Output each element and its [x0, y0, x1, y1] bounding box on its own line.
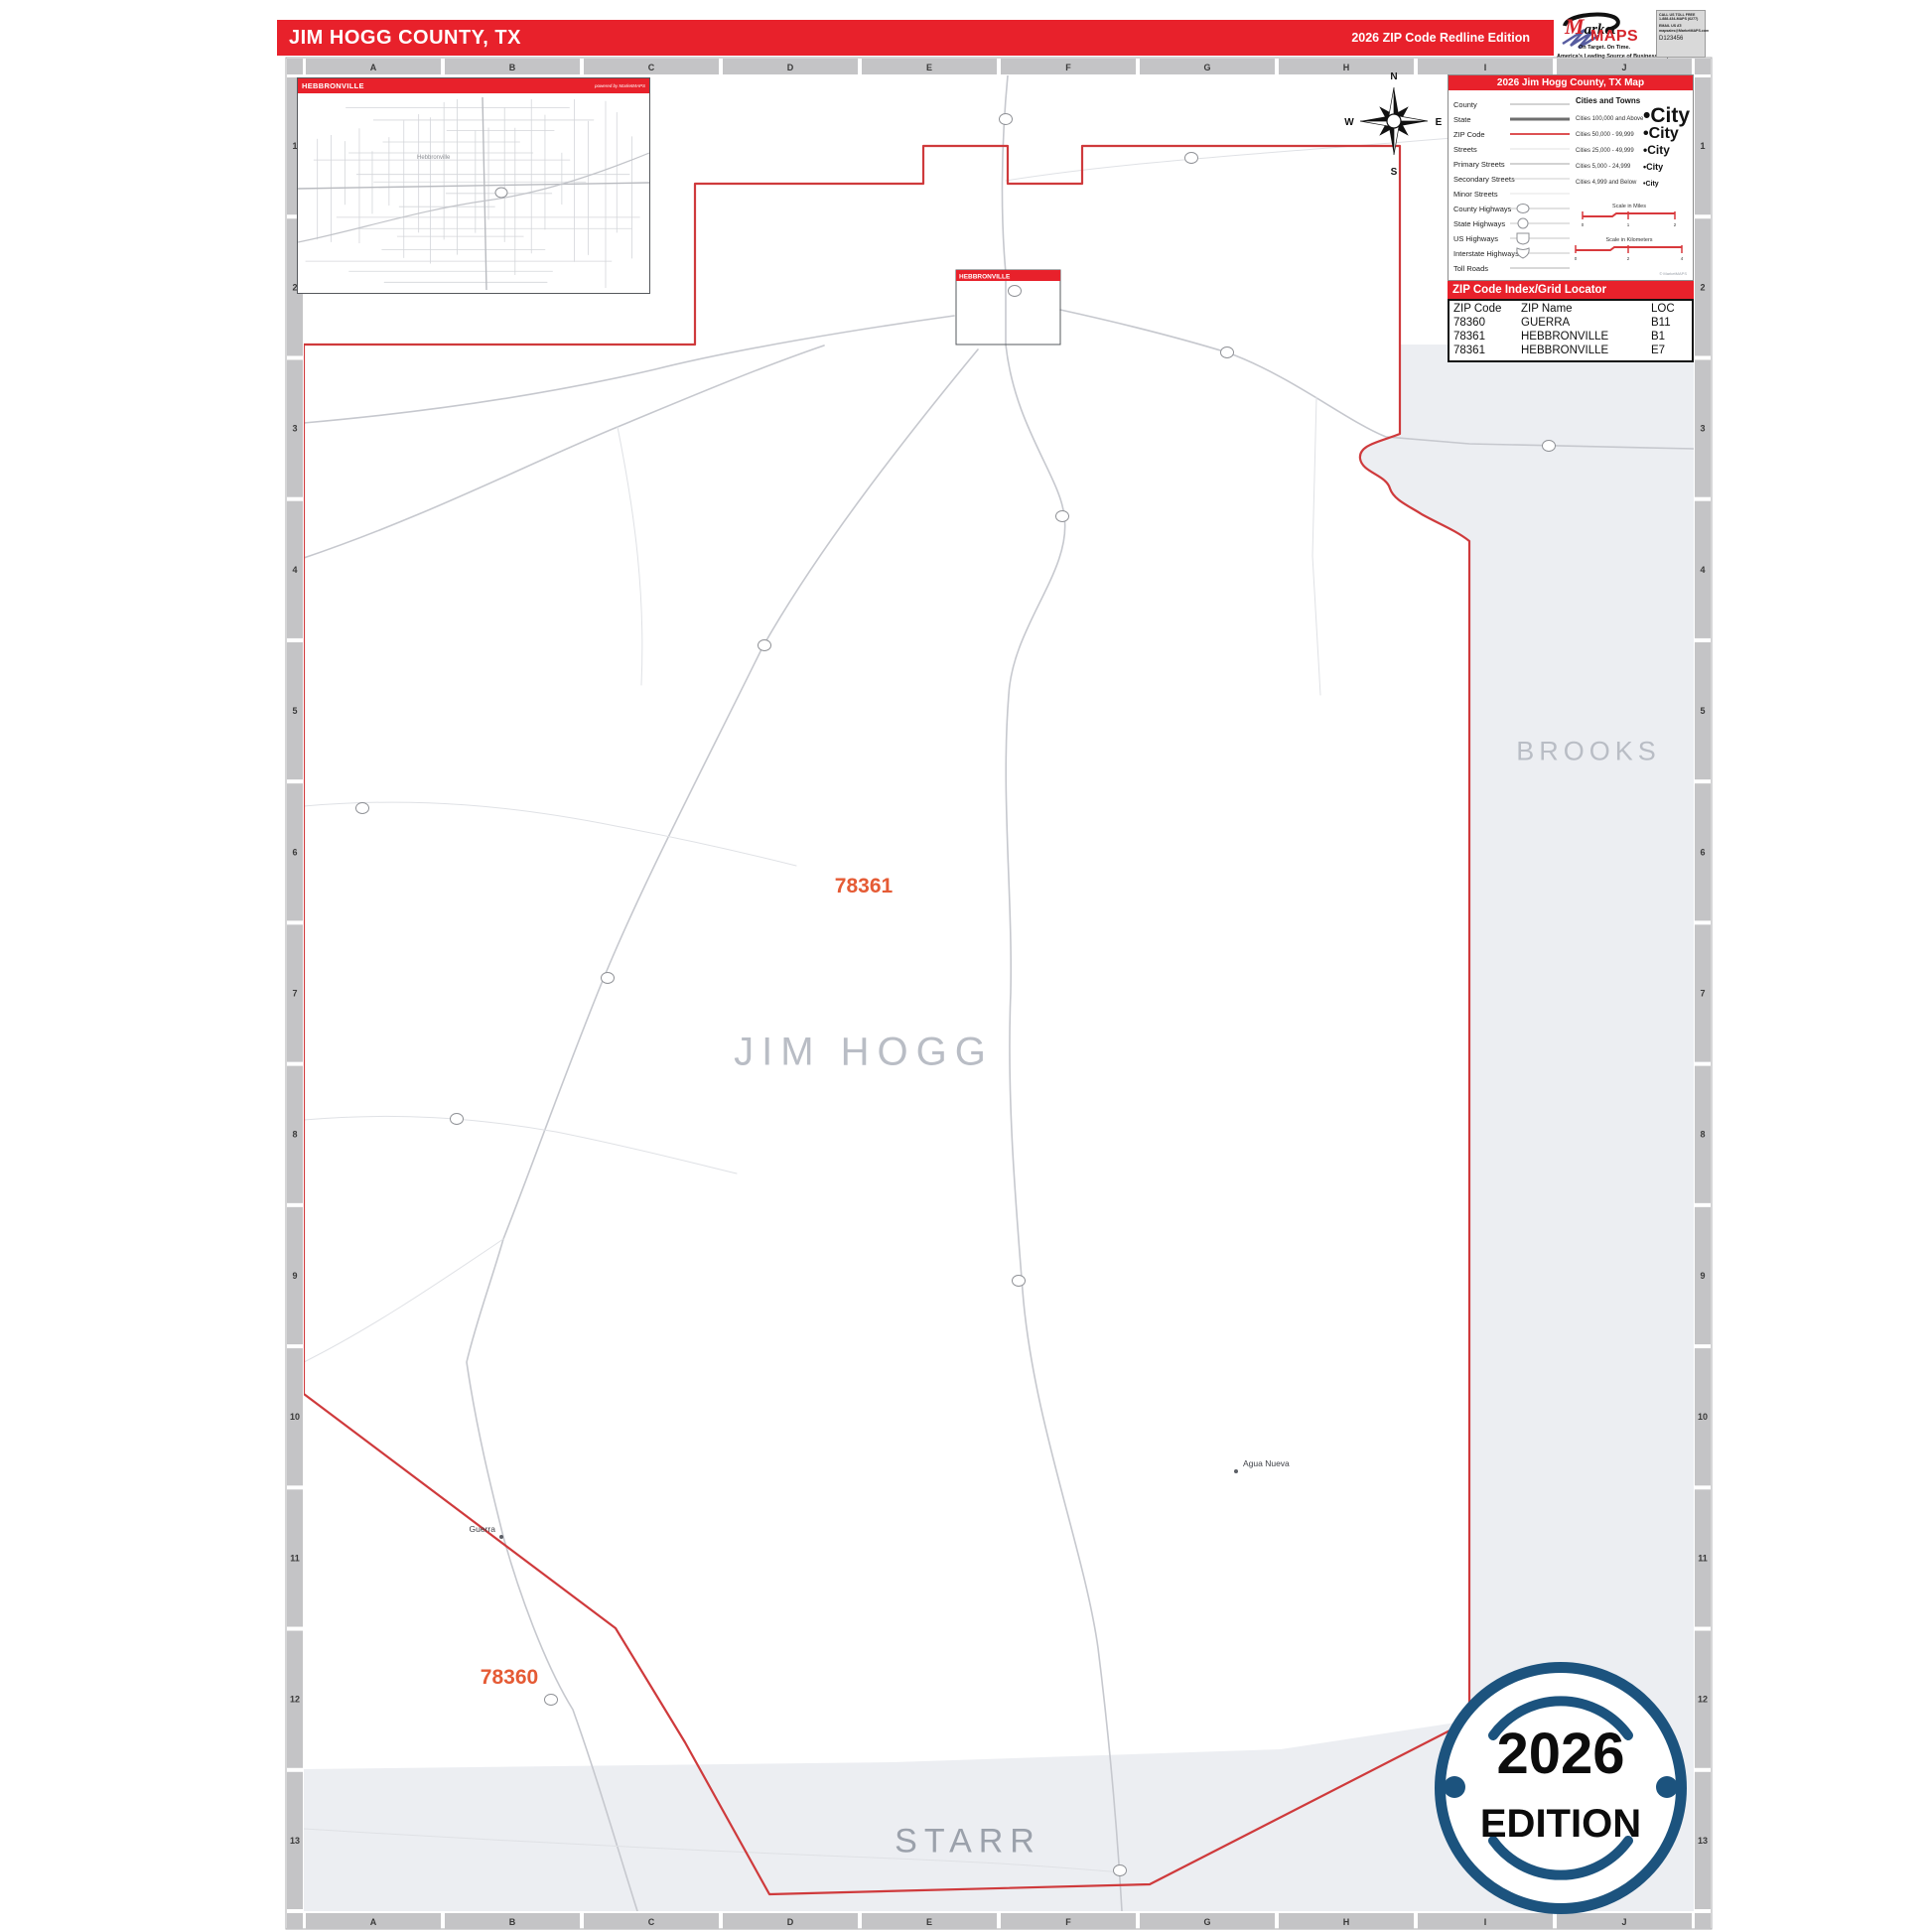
- town-label: Agua Nueva: [1243, 1458, 1290, 1468]
- grid-ruler-label: 3: [1700, 424, 1705, 434]
- legend-body: CountyStateZIP CodeStreetsPrimary Street…: [1449, 90, 1693, 280]
- grid-ruler-label: 5: [292, 706, 297, 716]
- legend-item-label: Secondary Streets: [1453, 175, 1515, 184]
- state-highway-shield-icon: [1518, 218, 1528, 228]
- zip-table-row: 78360GUERRAB11: [1449, 317, 1692, 331]
- highway-shield-icon: [759, 640, 771, 651]
- grid-ruler-label: 8: [1700, 1130, 1705, 1140]
- legend-item-label: Streets: [1453, 145, 1477, 154]
- city-sample: •City: [1643, 104, 1690, 127]
- compass-rose-icon: N S E W: [1342, 64, 1446, 179]
- grid-ruler-label: 10: [290, 1412, 300, 1422]
- compass-e: E: [1436, 117, 1443, 128]
- scale-tick-label: 2: [1627, 256, 1630, 261]
- zip-table-row-cell: 78360: [1453, 317, 1485, 329]
- county-highway-shield-icon: [1517, 205, 1529, 213]
- grid-ruler-label: 2: [1700, 282, 1705, 292]
- grid-ruler-label: F: [1065, 1917, 1071, 1927]
- legend-item-label: ZIP Code: [1453, 130, 1485, 139]
- grid-ruler-label: 12: [1698, 1695, 1708, 1705]
- legend-item-label: County: [1453, 100, 1477, 109]
- grid-ruler-label: 10: [1698, 1412, 1708, 1422]
- highway-shield-icon: [1185, 153, 1198, 164]
- grid-ruler-label: I: [1484, 1917, 1487, 1927]
- grid-ruler-label: 3: [292, 424, 297, 434]
- scale-tick-label: 2: [1674, 222, 1677, 227]
- inset-credit: powered by MarketMAPS: [595, 83, 645, 88]
- grid-ruler-label: 11: [290, 1553, 300, 1563]
- legend-copyright: © MarketMAPS: [1659, 271, 1687, 276]
- legend-item-label: State Highways: [1453, 219, 1505, 228]
- grid-ruler-segment: [1695, 1913, 1711, 1929]
- city-locator-box: [956, 270, 1060, 345]
- road: [304, 802, 796, 866]
- grid-ruler-label: A: [370, 63, 377, 72]
- grid-ruler-label: 9: [292, 1271, 297, 1281]
- zip-table-row-cell: 78361: [1453, 345, 1485, 356]
- grid-ruler-label: G: [1203, 1917, 1210, 1927]
- compass-w: W: [1344, 117, 1354, 128]
- zip-code-label: 78361: [835, 875, 893, 898]
- road: [304, 345, 824, 558]
- grid-ruler-label: D: [787, 1917, 794, 1927]
- badge-decoration: [1446, 1673, 1676, 1903]
- road: [304, 316, 954, 423]
- scale-title: Scale in Miles: [1612, 204, 1646, 209]
- city-class-label: Cities 50,000 - 99,999: [1576, 132, 1634, 138]
- grid-ruler-label: H: [1343, 1917, 1350, 1927]
- road: [304, 1239, 503, 1362]
- town-dot: [1234, 1469, 1238, 1473]
- zip-table-row-cell: 78361: [1453, 331, 1485, 343]
- road: [618, 427, 642, 685]
- compass-s: S: [1391, 167, 1398, 178]
- compass-n: N: [1390, 71, 1397, 82]
- grid-ruler-label: 6: [292, 847, 297, 857]
- highway-shield-icon: [545, 1695, 558, 1706]
- zip-table-row-cell: B1: [1651, 331, 1665, 343]
- grid-ruler-label: 5: [1700, 706, 1705, 716]
- grid-ruler-label: B: [509, 63, 516, 72]
- grid-ruler-label: E: [926, 1917, 932, 1927]
- town-label: Guerra: [470, 1524, 496, 1534]
- hebbronville-inset-map: HEBBRONVILLE powered by MarketMAPS Hebbr…: [297, 77, 650, 294]
- grid-ruler-label: J: [1621, 63, 1626, 72]
- grid-ruler-label: 6: [1700, 847, 1705, 857]
- grid-ruler-label: 7: [292, 989, 297, 999]
- grid-ruler-label: B: [509, 1917, 516, 1927]
- legend-panel: 2026 Jim Hogg County, TX Map CountyState…: [1448, 74, 1694, 281]
- highway-shield-icon: [495, 188, 507, 198]
- zip-table-row-cell: HEBBRONVILLE: [1521, 331, 1608, 343]
- us-highway-shield-icon: [1517, 233, 1529, 244]
- grid-ruler-label: 1: [1700, 141, 1705, 151]
- grid-ruler-label: C: [648, 1917, 655, 1927]
- grid-ruler-label: 4: [1700, 565, 1705, 575]
- city-class-label: Cities 4,999 and Below: [1576, 180, 1637, 186]
- city-sample: •City: [1643, 162, 1663, 172]
- legend-item-label: Toll Roads: [1453, 264, 1488, 273]
- map-poster: JIM HOGG COUNTY, TX 2026 ZIP Code Redlin…: [0, 0, 1932, 1932]
- zip-table-header-cell: ZIP Code: [1453, 303, 1501, 315]
- grid-ruler-segment: [287, 1913, 303, 1929]
- road: [1312, 397, 1320, 695]
- neighbor-county-label: BROOKS: [1516, 737, 1661, 767]
- road: [467, 349, 978, 1911]
- legend-item-label: Minor Streets: [1453, 190, 1498, 199]
- legend-item-label: State: [1453, 115, 1471, 124]
- grid-ruler-label: D: [787, 63, 794, 72]
- grid-ruler-label: I: [1484, 63, 1487, 72]
- grid-ruler-label: 8: [292, 1130, 297, 1140]
- edition-badge: 2026 EDITION: [1435, 1662, 1687, 1914]
- grid-ruler-label: G: [1203, 63, 1210, 72]
- legend-item-label: Interstate Highways: [1453, 249, 1519, 258]
- zip-table-row: 78361HEBBRONVILLEE7: [1449, 345, 1692, 358]
- zip-table-header: ZIP CodeZIP NameLOC: [1449, 303, 1692, 317]
- grid-ruler-label: C: [648, 63, 655, 72]
- highway-shield-icon: [356, 803, 369, 814]
- highway-shield-icon: [1000, 114, 1013, 125]
- grid-ruler-label: 12: [290, 1695, 300, 1705]
- zip-code-label: 78360: [481, 1666, 538, 1690]
- scale-tick-label: 0: [1582, 222, 1585, 227]
- grid-ruler-label: 13: [290, 1836, 300, 1846]
- scale-tick-label: 1: [1627, 222, 1630, 227]
- city-sample: •City: [1643, 125, 1679, 142]
- scale-title: Scale in Kilometers: [1605, 237, 1652, 243]
- legend-title: 2026 Jim Hogg County, TX Map: [1449, 75, 1693, 90]
- inset-street-grid: Hebbronville: [298, 93, 649, 293]
- highway-shield-icon: [1221, 347, 1234, 358]
- highway-shield-icon: [1114, 1865, 1127, 1876]
- highway-shield-icon: [1543, 441, 1556, 452]
- scale-tick-label: 4: [1681, 256, 1684, 261]
- highway-shield-icon: [1056, 511, 1069, 522]
- town-dot: [499, 1535, 503, 1539]
- city-class-label: Cities 25,000 - 49,999: [1576, 148, 1634, 154]
- grid-ruler-segment: [287, 59, 303, 74]
- inset-title: HEBBRONVILLE: [302, 81, 364, 90]
- city-locator-label: HEBBRONVILLE: [959, 274, 1011, 281]
- highway-shield-icon: [1013, 1276, 1026, 1287]
- legend-item-label: US Highways: [1453, 234, 1498, 243]
- zip-table-header-cell: LOC: [1651, 303, 1675, 315]
- grid-ruler-label: F: [1065, 63, 1071, 72]
- grid-ruler-segment: [1695, 59, 1711, 74]
- grid-ruler-label: 11: [1698, 1553, 1708, 1563]
- grid-ruler-label: 7: [1700, 989, 1705, 999]
- inset-header: HEBBRONVILLE powered by MarketMAPS: [298, 78, 649, 93]
- city-class-label: Cities 100,000 and Above: [1576, 116, 1644, 122]
- city-class-label: Cities 5,000 - 24,999: [1576, 164, 1631, 170]
- zip-table-row: 78361HEBBRONVILLEB1: [1449, 331, 1692, 345]
- city-sample: •City: [1643, 143, 1670, 157]
- road: [304, 1116, 737, 1173]
- scale-tick-label: 0: [1575, 256, 1578, 261]
- inset-town-label: Hebbronville: [417, 155, 451, 161]
- cities-header: Cities and Towns: [1576, 96, 1641, 105]
- grid-ruler-label: 4: [292, 565, 297, 575]
- highway-shield-icon: [1009, 286, 1022, 297]
- legend-item-label: Primary Streets: [1453, 160, 1505, 169]
- badge-year: 2026: [1446, 1721, 1676, 1787]
- zip-table-row-cell: HEBBRONVILLE: [1521, 345, 1608, 356]
- grid-ruler-label: E: [926, 63, 932, 72]
- grid-ruler-label: 9: [1700, 1271, 1705, 1281]
- legend-item-label: County Highways: [1453, 205, 1512, 213]
- neighbor-county-label: STARR: [895, 1823, 1041, 1862]
- road: [1002, 75, 1122, 1911]
- grid-ruler-label: 13: [1698, 1836, 1708, 1846]
- city-sample: •City: [1643, 181, 1659, 188]
- grid-ruler-label: A: [370, 1917, 377, 1927]
- zip-table-row-cell: E7: [1651, 345, 1665, 356]
- zip-table-header-cell: ZIP Name: [1521, 303, 1573, 315]
- grid-ruler-label: J: [1621, 1917, 1626, 1927]
- zip-table-row-cell: GUERRA: [1521, 317, 1570, 329]
- zip-table-row-cell: B11: [1651, 317, 1671, 329]
- zip-index-table: ZIP CodeZIP NameLOC78360GUERRAB1178361HE…: [1448, 299, 1694, 362]
- badge-word: EDITION: [1446, 1802, 1676, 1847]
- zip-index-title: ZIP Code Index/Grid Locator: [1448, 281, 1694, 299]
- county-boundary: [304, 146, 1469, 1894]
- highway-shield-icon: [602, 973, 615, 984]
- county-name-label: JIM HOGG: [734, 1031, 994, 1075]
- highway-shield-icon: [451, 1114, 464, 1125]
- inset-main-street: [298, 183, 649, 189]
